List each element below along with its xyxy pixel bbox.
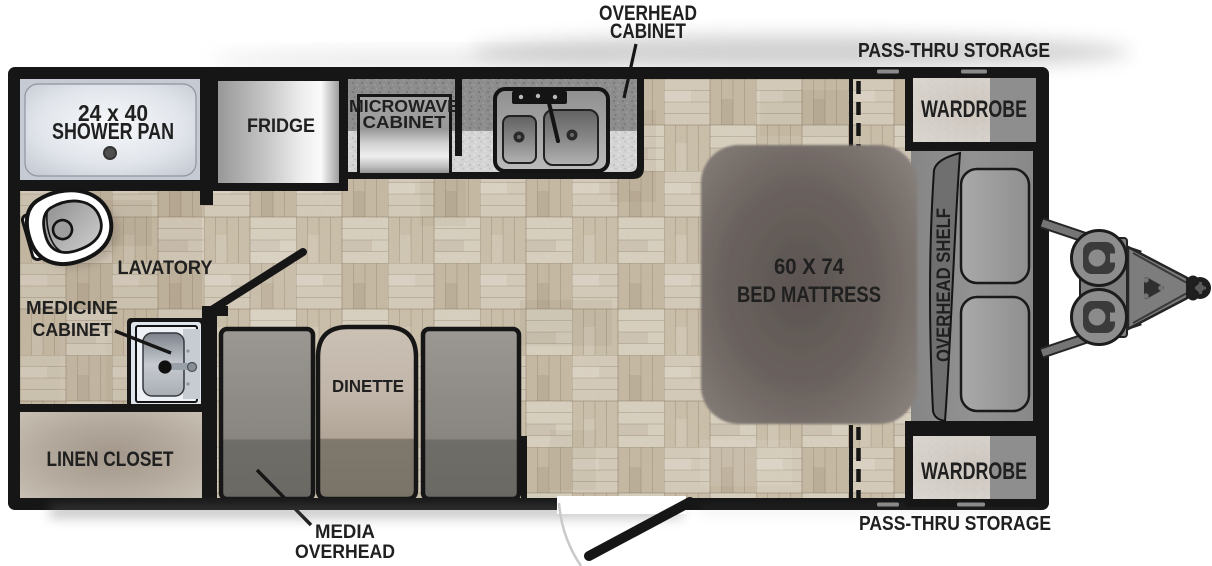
svg-text:60 X 74: 60 X 74 [774,254,845,279]
svg-text:CABINET: CABINET [33,319,113,340]
svg-text:BED MATTRESS: BED MATTRESS [737,282,881,307]
svg-text:FRIDGE: FRIDGE [247,115,315,137]
svg-text:WARDROBE: WARDROBE [921,96,1027,123]
svg-text:SHOWER PAN: SHOWER PAN [52,118,174,144]
svg-text:PASS-THRU STORAGE: PASS-THRU STORAGE [858,39,1050,62]
svg-text:PASS-THRU STORAGE: PASS-THRU STORAGE [859,512,1051,535]
svg-text:MEDIA: MEDIA [315,521,375,543]
svg-text:OVERHEAD SHELF: OVERHEAD SHELF [934,208,955,362]
svg-text:DINETTE: DINETTE [332,376,404,396]
svg-text:LINEN CLOSET: LINEN CLOSET [47,447,174,471]
svg-text:LAVATORY: LAVATORY [118,257,213,279]
svg-text:MEDICINE: MEDICINE [26,297,118,318]
svg-text:WARDROBE: WARDROBE [921,458,1027,485]
svg-text:CABINET: CABINET [610,20,686,43]
svg-text:CABINET: CABINET [363,112,446,132]
svg-text:OVERHEAD: OVERHEAD [295,541,395,563]
